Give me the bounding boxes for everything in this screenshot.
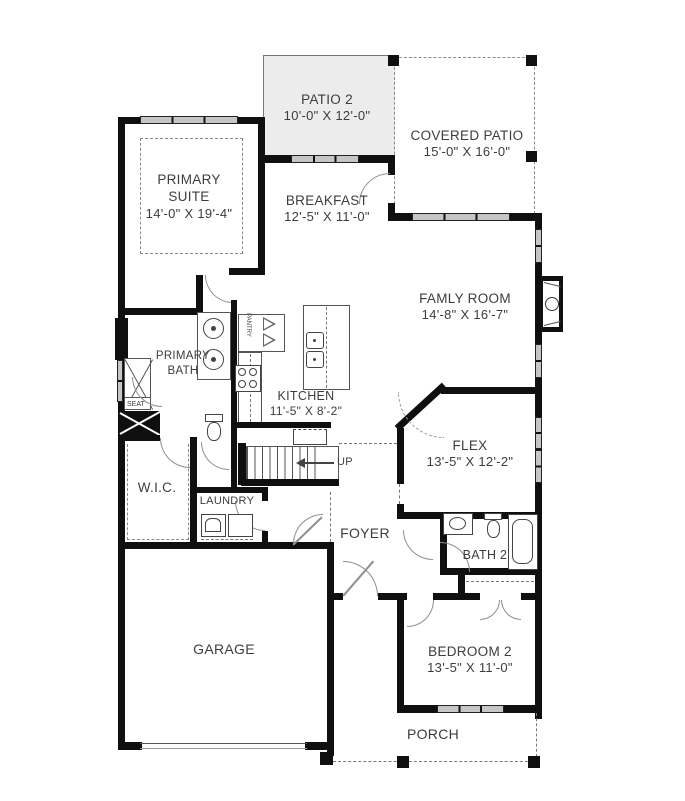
room-label-bath2: BATH 2 xyxy=(454,547,516,563)
wall xyxy=(521,593,542,600)
window xyxy=(535,229,542,263)
ceiling-break-line xyxy=(339,443,397,444)
door-arc-primary-suite xyxy=(205,275,233,303)
wall xyxy=(231,300,237,487)
room-label-patio2: PATIO 2 10'-0" X 12'-0" xyxy=(262,91,392,125)
wall xyxy=(262,487,268,501)
tub-deck xyxy=(119,411,160,435)
room-label-foyer: FOYER xyxy=(333,525,397,543)
patio-post xyxy=(526,55,537,66)
wall xyxy=(441,387,542,394)
linen-cabinet xyxy=(115,318,128,360)
wall xyxy=(433,593,480,600)
room-label-laundry: LAUNDRY xyxy=(195,494,259,508)
wall xyxy=(241,479,339,486)
refrigerator xyxy=(293,429,327,445)
up-arrow xyxy=(304,462,334,464)
door-arc-closet xyxy=(501,600,521,620)
room-label-kitchen: KITCHEN 11'-5" X 8'-2" xyxy=(258,388,354,419)
appliance-line xyxy=(201,539,253,540)
room-label-bedroom2: BEDROOM 2 13'-5" X 11'-0" xyxy=(405,643,535,677)
door-arc-wc xyxy=(201,442,229,470)
wall xyxy=(397,428,404,484)
up-arrow-head xyxy=(296,458,305,468)
porch-post xyxy=(528,756,540,768)
seat-label: SEAT xyxy=(127,401,145,408)
floor-plan: SEAT PANTRY UP xyxy=(0,0,685,801)
room-label-primary-bath: PRIMARY BATH xyxy=(152,349,214,378)
wall xyxy=(397,593,404,712)
wall xyxy=(229,268,265,275)
toilet-icon xyxy=(205,414,223,422)
wall xyxy=(119,435,160,441)
mud-opening xyxy=(330,492,331,542)
wall xyxy=(327,542,334,756)
pantry-label: PANTRY xyxy=(245,310,251,340)
window xyxy=(437,705,504,713)
dryer-icon xyxy=(228,514,253,537)
toilet-icon xyxy=(484,513,502,520)
bath2-vanity xyxy=(443,513,473,535)
garage-door xyxy=(140,743,307,749)
flex-opening xyxy=(399,484,400,504)
wall xyxy=(305,742,329,750)
wall xyxy=(118,742,142,750)
fireplace xyxy=(540,276,563,332)
wall xyxy=(197,487,268,493)
window xyxy=(117,360,123,402)
washer-icon xyxy=(201,514,226,537)
window xyxy=(140,116,238,124)
porch-post xyxy=(397,756,409,768)
porch-post xyxy=(320,752,333,765)
room-label-primary-suite: PRIMARY SUITE 14'-0" X 19'-4" xyxy=(128,171,250,222)
room-label-flex: FLEX 13'-5" X 12'-2" xyxy=(410,437,530,471)
porch-edge xyxy=(536,713,537,762)
room-label-family-room: FAMLY ROOM 14'-8" X 16'-7" xyxy=(400,290,530,324)
room-label-garage: GARAGE xyxy=(168,641,280,659)
window xyxy=(535,344,542,378)
toilet-icon xyxy=(487,520,500,538)
door-arc-flex xyxy=(398,392,444,438)
door-arc-closet xyxy=(480,600,500,620)
patio-post xyxy=(388,55,399,66)
pantry-shelf-icon xyxy=(263,333,276,347)
wall xyxy=(118,308,203,315)
window xyxy=(535,450,542,483)
toilet-icon xyxy=(207,422,221,441)
window xyxy=(535,417,542,449)
up-label: UP xyxy=(337,455,361,469)
room-label-porch: PORCH xyxy=(401,726,465,744)
window xyxy=(412,213,510,221)
wall xyxy=(333,593,343,600)
island-overhang xyxy=(326,307,327,388)
wall xyxy=(231,422,331,428)
closet-shelf xyxy=(466,581,534,582)
window xyxy=(291,155,359,163)
door-arc-bedroom2 xyxy=(407,600,434,627)
porch-edge xyxy=(333,761,538,762)
room-label-covered-patio: COVERED PATIO 15'-0" X 16'-0" xyxy=(397,127,537,161)
wall xyxy=(190,437,197,545)
room-label-wic: W.I.C. xyxy=(126,479,188,496)
door-arc-hall xyxy=(403,530,433,560)
pantry-shelf-icon xyxy=(263,317,276,331)
room-label-breakfast: BREAKFAST 12'-5" X 11'-0" xyxy=(262,192,392,226)
